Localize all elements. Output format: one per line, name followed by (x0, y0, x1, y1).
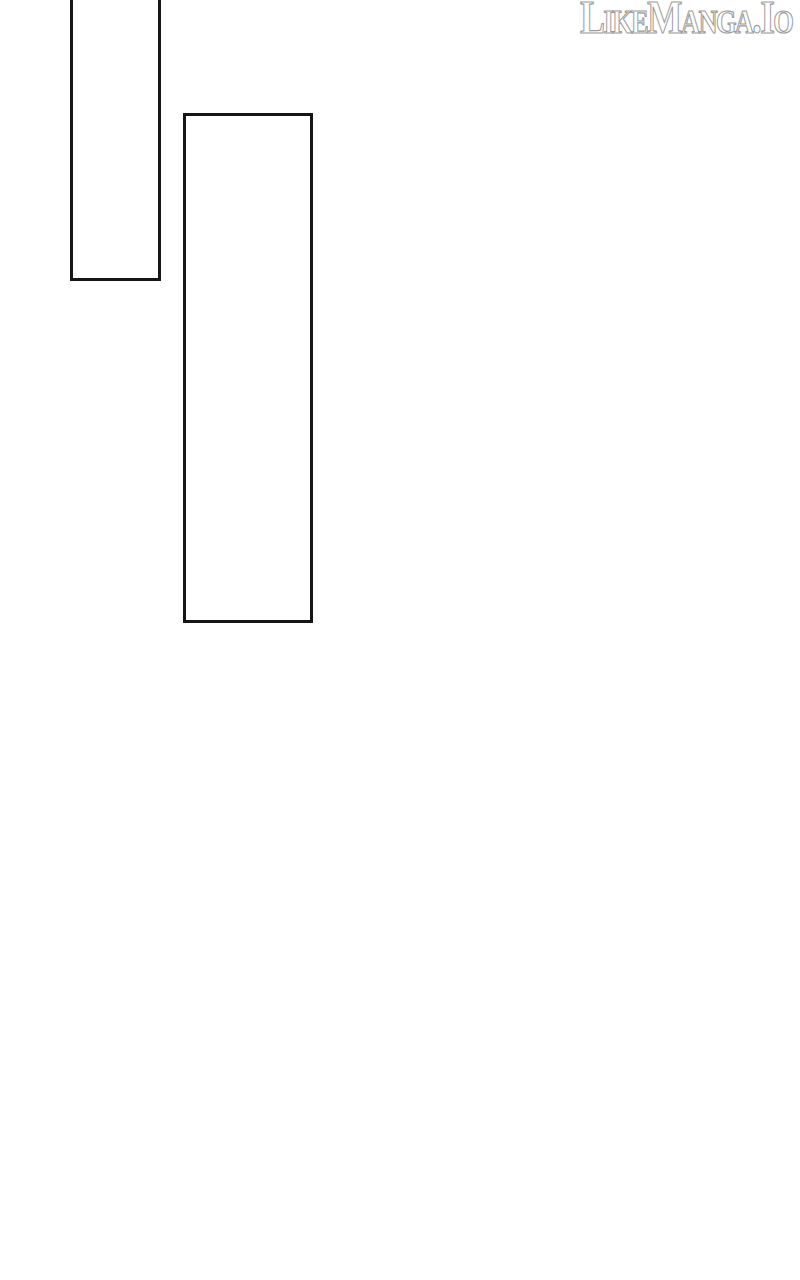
manga-panel-2 (183, 113, 313, 623)
manga-panel-1 (70, 0, 161, 281)
likemanga-watermark-logo: LikeManga.Io (580, 0, 792, 41)
manga-page: LikeManga.Io (0, 0, 800, 1280)
